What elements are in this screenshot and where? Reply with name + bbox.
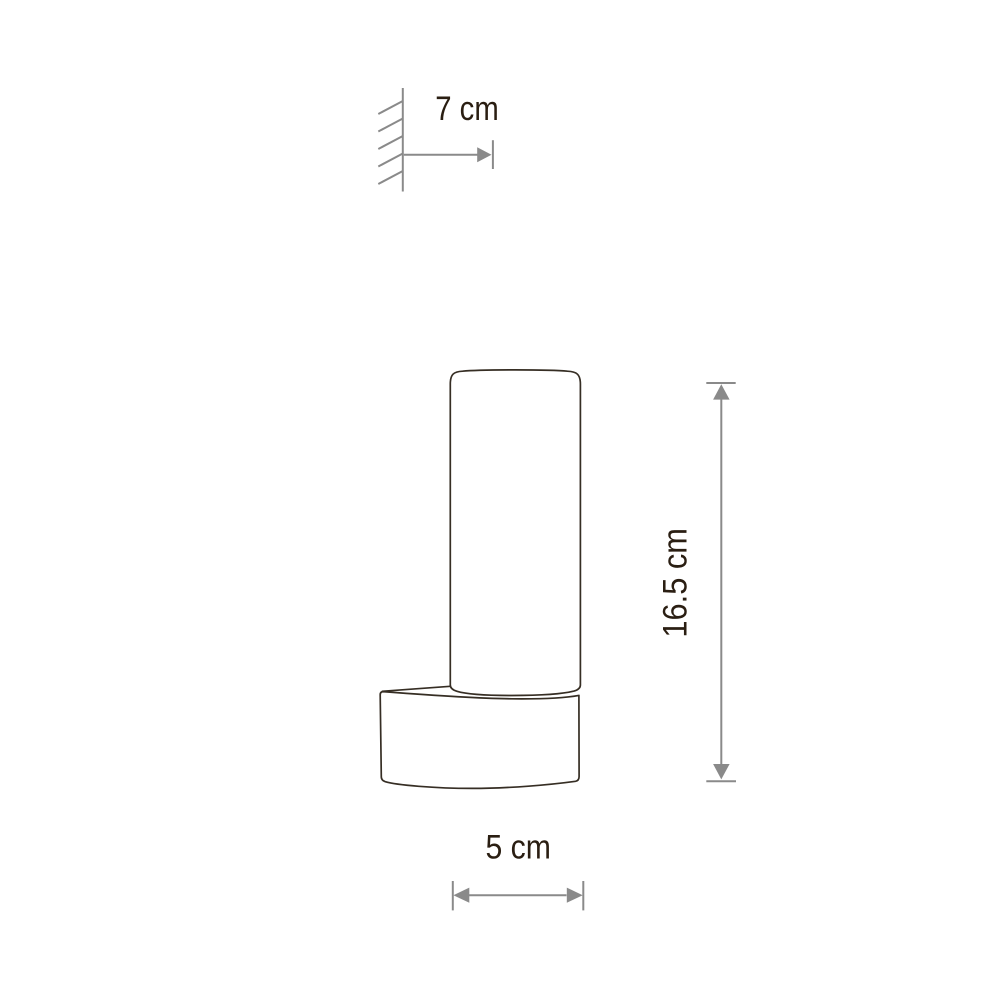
svg-text:5 cm: 5 cm [485,829,551,867]
svg-text:7 cm: 7 cm [435,90,499,128]
svg-text:16.5 cm: 16.5 cm [656,528,694,638]
